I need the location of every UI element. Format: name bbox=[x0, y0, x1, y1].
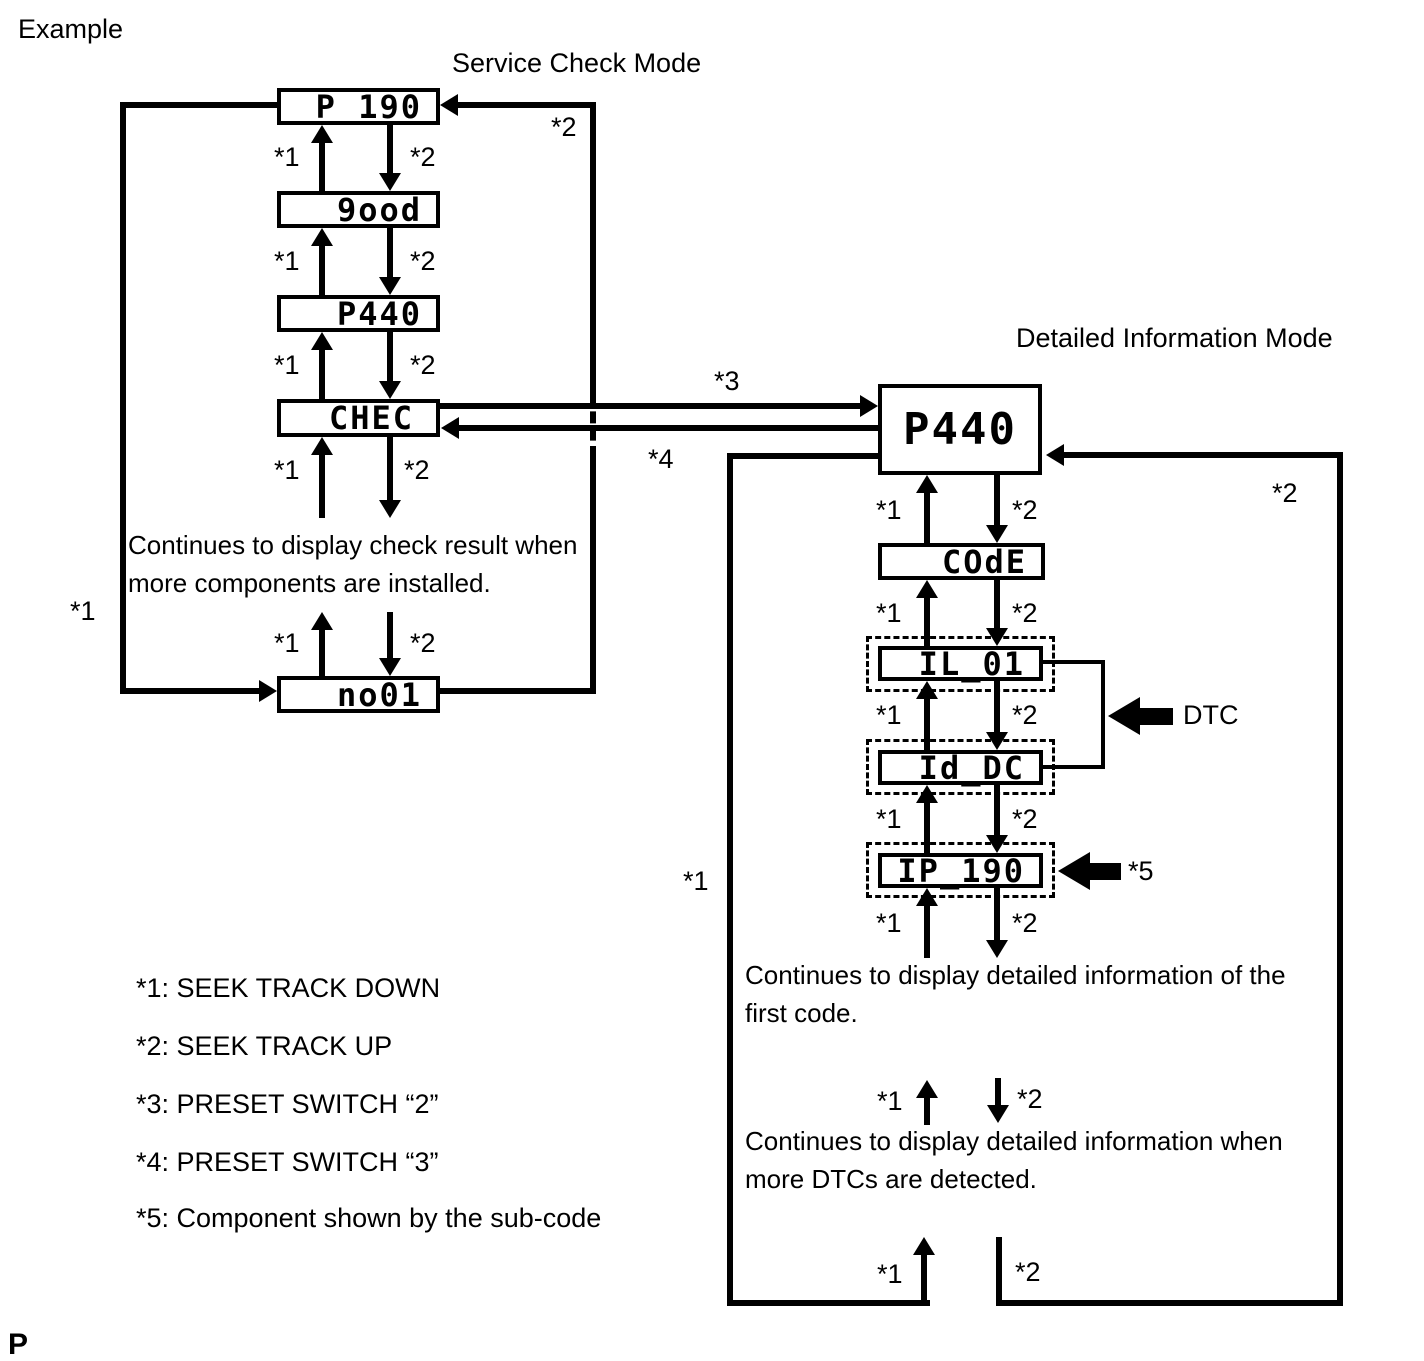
down-arrowhead bbox=[986, 628, 1008, 646]
loop-line bbox=[727, 1300, 930, 1306]
legend-preset-switch-3: *4: PRESET SWITCH “3” bbox=[136, 1147, 439, 1178]
display-iddc-text: Id_DC bbox=[919, 749, 1025, 787]
subcode-block-arrow-tail bbox=[1090, 863, 1121, 880]
up-arrowhead bbox=[311, 228, 333, 246]
marker-star1: *1 bbox=[274, 350, 300, 381]
down-arrow-shaft bbox=[387, 437, 393, 502]
display-il01-text: IL_01 bbox=[919, 645, 1025, 683]
dtc-label: DTC bbox=[1183, 700, 1239, 731]
marker-star2: *2 bbox=[410, 142, 436, 173]
down-arrowhead bbox=[379, 658, 401, 676]
marker-star2: *2 bbox=[410, 246, 436, 277]
marker-star1: *1 bbox=[876, 908, 902, 939]
down-arrowhead bbox=[379, 277, 401, 295]
dtc-block-arrow-tail bbox=[1140, 708, 1173, 725]
diagram-canvas: Example Service Check Mode Detailed Info… bbox=[0, 0, 1424, 1361]
display-good-text: 9ood bbox=[337, 191, 422, 229]
note-first-code: Continues to display detailed informatio… bbox=[745, 956, 1290, 1032]
down-arrowhead bbox=[986, 835, 1008, 853]
marker-star1: *1 bbox=[274, 142, 300, 173]
page-footer-letter: P bbox=[8, 1328, 28, 1361]
legend-subcode-component: *5: Component shown by the sub-code bbox=[136, 1203, 601, 1234]
preset2-arrow-shaft bbox=[440, 403, 860, 409]
up-arrow-shaft bbox=[924, 904, 930, 958]
down-arrowhead bbox=[986, 732, 1008, 750]
loop-line bbox=[727, 453, 878, 459]
down-arrow-shaft bbox=[387, 332, 393, 383]
display-code: COdE bbox=[878, 543, 1045, 580]
detailed-information-mode-title: Detailed Information Mode bbox=[1016, 323, 1333, 354]
marker-star1: *1 bbox=[274, 455, 300, 486]
loop-line bbox=[727, 453, 733, 1306]
down-arrow-shaft bbox=[387, 612, 393, 660]
loop-line bbox=[590, 102, 596, 394]
legend-seek-track-up: *2: SEEK TRACK UP bbox=[136, 1031, 392, 1062]
service-check-mode-title: Service Check Mode bbox=[452, 48, 701, 79]
marker-star2: *2 bbox=[410, 628, 436, 659]
left-arrowhead bbox=[441, 417, 459, 439]
loop-line bbox=[1337, 452, 1343, 1306]
display-p440-service-text: P440 bbox=[337, 295, 422, 333]
up-arrow-shaft bbox=[924, 1096, 930, 1125]
loop-line bbox=[120, 102, 277, 108]
up-arrow-shaft bbox=[319, 244, 325, 295]
down-line bbox=[996, 1237, 1002, 1306]
marker-star1: *1 bbox=[876, 598, 902, 629]
note-more-dtcs: Continues to display detailed informatio… bbox=[745, 1122, 1320, 1198]
up-arrowhead bbox=[916, 785, 938, 803]
loop-line bbox=[440, 688, 596, 694]
display-good: 9ood bbox=[277, 191, 440, 228]
down-arrowhead bbox=[987, 1105, 1009, 1123]
display-no01: no01 bbox=[277, 676, 440, 713]
marker-star1: *1 bbox=[683, 866, 709, 897]
up-arrow-shaft bbox=[319, 453, 325, 518]
marker-star3: *3 bbox=[714, 366, 740, 397]
right-arrowhead bbox=[259, 680, 277, 702]
loop-line bbox=[590, 458, 596, 694]
marker-star1: *1 bbox=[877, 1259, 903, 1290]
up-arrowhead bbox=[311, 332, 333, 350]
up-arrowhead bbox=[311, 125, 333, 143]
up-arrowhead bbox=[311, 612, 333, 630]
preset3-arrow-shaft bbox=[459, 425, 878, 431]
marker-star2: *2 bbox=[551, 112, 577, 143]
down-arrow-shaft bbox=[994, 475, 1000, 527]
legend-preset-switch-2: *3: PRESET SWITCH “2” bbox=[136, 1089, 439, 1120]
marker-star1: *1 bbox=[876, 700, 902, 731]
marker-star2: *2 bbox=[410, 350, 436, 381]
loop-line bbox=[996, 1300, 1343, 1306]
up-arrow-shaft bbox=[319, 348, 325, 399]
down-arrowhead bbox=[379, 173, 401, 191]
display-chec-text: CHEC bbox=[329, 399, 414, 437]
up-arrowhead bbox=[916, 475, 938, 493]
legend-seek-track-down: *1: SEEK TRACK DOWN bbox=[136, 973, 440, 1004]
display-il01: IL_01 bbox=[878, 646, 1043, 681]
up-arrowhead bbox=[916, 681, 938, 699]
loop-line bbox=[458, 102, 596, 108]
display-chec: CHEC bbox=[277, 399, 440, 437]
up-arrowhead bbox=[916, 888, 938, 906]
display-no01-text: no01 bbox=[337, 676, 422, 714]
marker-star2: *2 bbox=[404, 455, 430, 486]
up-arrow-shaft bbox=[319, 141, 325, 191]
display-p440-detailed: P440 bbox=[878, 384, 1042, 475]
up-arrowhead bbox=[916, 580, 938, 598]
marker-star1: *1 bbox=[274, 246, 300, 277]
marker-star2: *2 bbox=[1012, 804, 1038, 835]
display-p440-service: P440 bbox=[277, 295, 440, 332]
marker-star2: *2 bbox=[1272, 478, 1298, 509]
loop-line bbox=[1064, 452, 1343, 458]
marker-star1: *1 bbox=[274, 628, 300, 659]
right-arrowhead bbox=[860, 395, 878, 417]
up-arrowhead bbox=[311, 437, 333, 455]
down-arrowhead bbox=[379, 381, 401, 399]
down-arrow-shaft bbox=[994, 580, 1000, 630]
down-arrow-shaft bbox=[995, 1078, 1001, 1107]
marker-star1: *1 bbox=[70, 596, 96, 627]
marker-star2: *2 bbox=[1012, 700, 1038, 731]
example-label: Example bbox=[18, 14, 123, 45]
display-ip190: IP_190 bbox=[878, 853, 1043, 888]
display-p190-text: P 190 bbox=[316, 88, 422, 126]
display-iddc: Id_DC bbox=[878, 750, 1043, 785]
down-arrowhead bbox=[379, 500, 401, 518]
marker-star1: *1 bbox=[876, 804, 902, 835]
display-p440-detailed-text: P440 bbox=[903, 404, 1017, 455]
marker-star1: *1 bbox=[877, 1086, 903, 1117]
marker-star2: *2 bbox=[1015, 1257, 1041, 1288]
subcode-block-arrow bbox=[1058, 852, 1090, 890]
down-arrow-shaft bbox=[387, 228, 393, 279]
up-arrowhead bbox=[916, 1080, 938, 1098]
up-arrow-shaft bbox=[319, 628, 325, 676]
marker-star1: *1 bbox=[876, 495, 902, 526]
loop-line bbox=[120, 102, 126, 694]
marker-star2: *2 bbox=[1012, 908, 1038, 939]
marker-star2: *2 bbox=[1012, 495, 1038, 526]
display-ip190-text: IP_190 bbox=[897, 852, 1025, 890]
up-arrowhead bbox=[913, 1237, 935, 1255]
marker-star5: *5 bbox=[1128, 856, 1154, 887]
display-code-text: COdE bbox=[942, 543, 1027, 581]
service-check-note: Continues to display check result when m… bbox=[128, 526, 586, 602]
marker-star4: *4 bbox=[648, 444, 674, 475]
marker-star2: *2 bbox=[1017, 1084, 1043, 1115]
up-arrow-shaft bbox=[924, 491, 930, 543]
display-p190: P 190 bbox=[277, 88, 440, 125]
marker-star2: *2 bbox=[1012, 598, 1038, 629]
left-arrowhead bbox=[1046, 444, 1064, 466]
up-arrow-shaft bbox=[921, 1253, 927, 1306]
dtc-bracket-line bbox=[1101, 660, 1105, 769]
dtc-block-arrow bbox=[1108, 697, 1140, 735]
left-arrowhead bbox=[440, 94, 458, 116]
down-arrow-shaft bbox=[387, 125, 393, 175]
down-arrowhead bbox=[986, 525, 1008, 543]
loop-line bbox=[120, 688, 259, 694]
